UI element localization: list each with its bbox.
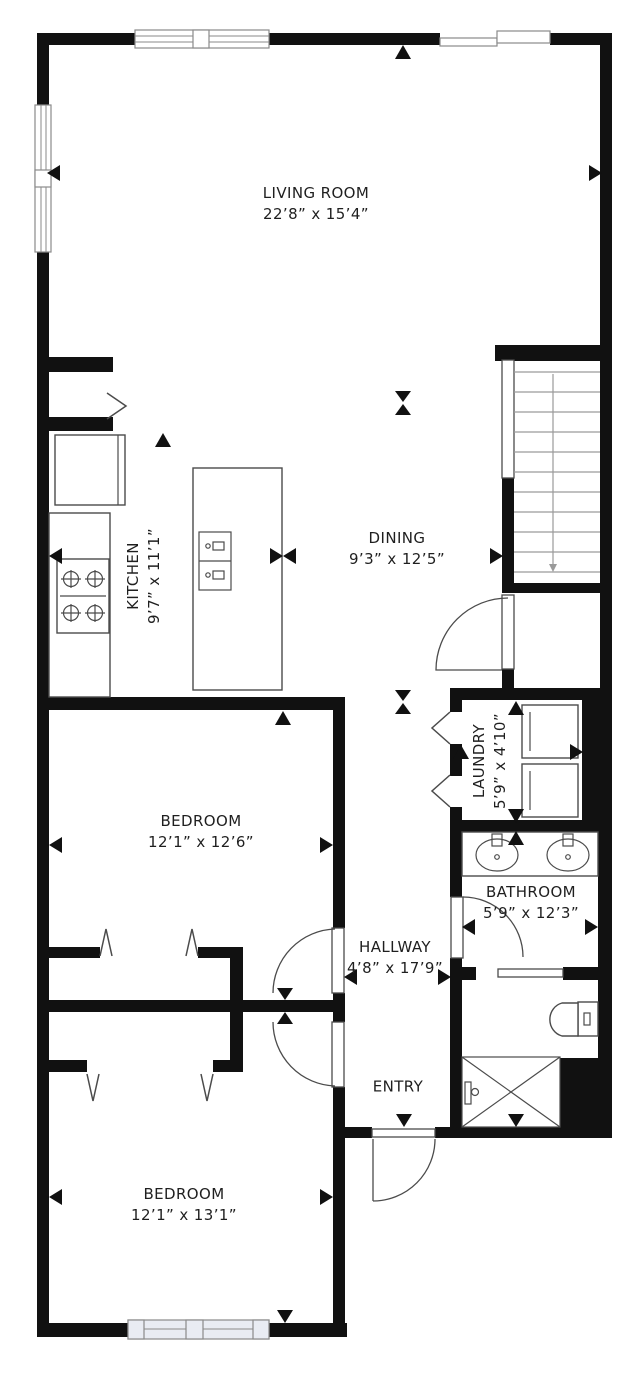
laundry-doors xyxy=(432,712,450,807)
room-dims: 12’1” x 12’6” xyxy=(148,832,254,853)
stairs xyxy=(502,360,600,572)
room-label-hallway: HALLWAY 4’8” x 17’9” xyxy=(347,937,443,979)
entry-door xyxy=(372,1129,435,1201)
room-label-entry: ENTRY xyxy=(373,1077,424,1098)
room-name: BEDROOM xyxy=(148,811,254,832)
floor-plan: LIVING ROOM 22’8” x 15’4” KITCHEN 9’7” x… xyxy=(0,0,640,1376)
room-label-bedroom1: BEDROOM 12’1” x 12’6” xyxy=(148,811,254,853)
dryer xyxy=(522,764,578,817)
room-name: ENTRY xyxy=(373,1077,424,1098)
room-name: LIVING ROOM xyxy=(263,183,369,204)
pocket-door xyxy=(498,969,563,977)
room-name: BEDROOM xyxy=(131,1184,237,1205)
room-dims: 5’9” x 12’3” xyxy=(483,903,579,924)
exterior-walls xyxy=(37,33,612,1337)
room-dims: 9’7” x 11’1” xyxy=(144,528,165,624)
room-label-bedroom2: BEDROOM 12’1” x 13’1” xyxy=(131,1184,237,1226)
room-dims: 5’9” x 4’10” xyxy=(490,713,511,809)
bedroom1-closet-doors xyxy=(100,929,198,956)
bedroom2-door xyxy=(273,1022,344,1087)
kitchen-island xyxy=(193,468,282,690)
understair-closet-door xyxy=(436,595,514,670)
window-left xyxy=(35,105,51,252)
room-dims: 9’3” x 12’5” xyxy=(349,549,445,570)
room-name: KITCHEN xyxy=(123,528,144,624)
room-label-bathroom: BATHROOM 5’9” x 12’3” xyxy=(483,882,579,924)
room-name: BATHROOM xyxy=(483,882,579,903)
refrigerator xyxy=(55,435,125,505)
window-bottom xyxy=(128,1320,269,1339)
toilet xyxy=(550,1002,598,1036)
room-name: HALLWAY xyxy=(347,937,443,958)
room-name: LAUNDRY xyxy=(469,713,490,809)
room-dims: 22’8” x 15’4” xyxy=(263,204,369,225)
room-dims: 12’1” x 13’1” xyxy=(131,1205,237,1226)
room-label-laundry: LAUNDRY 5’9” x 4’10” xyxy=(469,713,511,809)
bedroom1-door xyxy=(273,928,344,993)
room-label-kitchen: KITCHEN 9’7” x 11’1” xyxy=(123,528,165,624)
cooktop xyxy=(57,559,109,633)
room-label-dining: DINING 9’3” x 12’5” xyxy=(349,528,445,570)
room-label-living: LIVING ROOM 22’8” x 15’4” xyxy=(263,183,369,225)
opening-top-right xyxy=(440,31,550,46)
window-top xyxy=(135,30,269,48)
bedroom2-closet-doors xyxy=(87,1074,213,1101)
vanity-double-sink xyxy=(462,832,598,876)
washer xyxy=(522,705,578,758)
pantry-door xyxy=(107,393,126,419)
room-name: DINING xyxy=(349,528,445,549)
stair-railing xyxy=(502,360,514,478)
room-dims: 4’8” x 17’9” xyxy=(347,958,443,979)
